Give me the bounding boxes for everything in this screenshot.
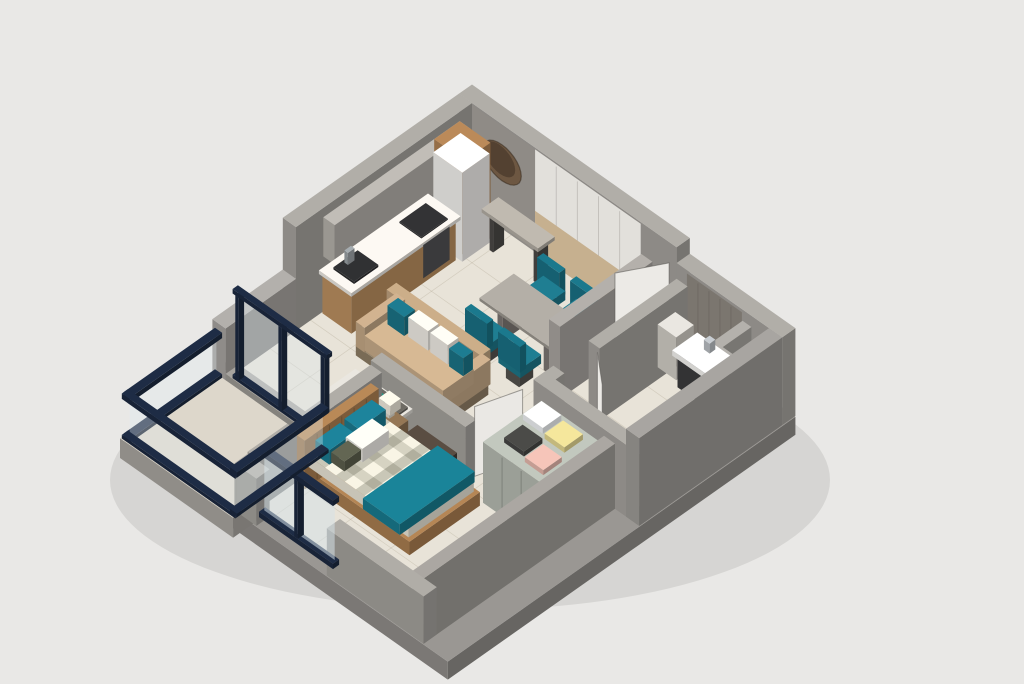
slidingdoor-mullion-left <box>235 292 244 381</box>
floorplan-canvas <box>0 0 1024 684</box>
slidingdoor-mullion-mid <box>278 322 287 411</box>
isometric-apartment-render <box>0 0 1024 684</box>
